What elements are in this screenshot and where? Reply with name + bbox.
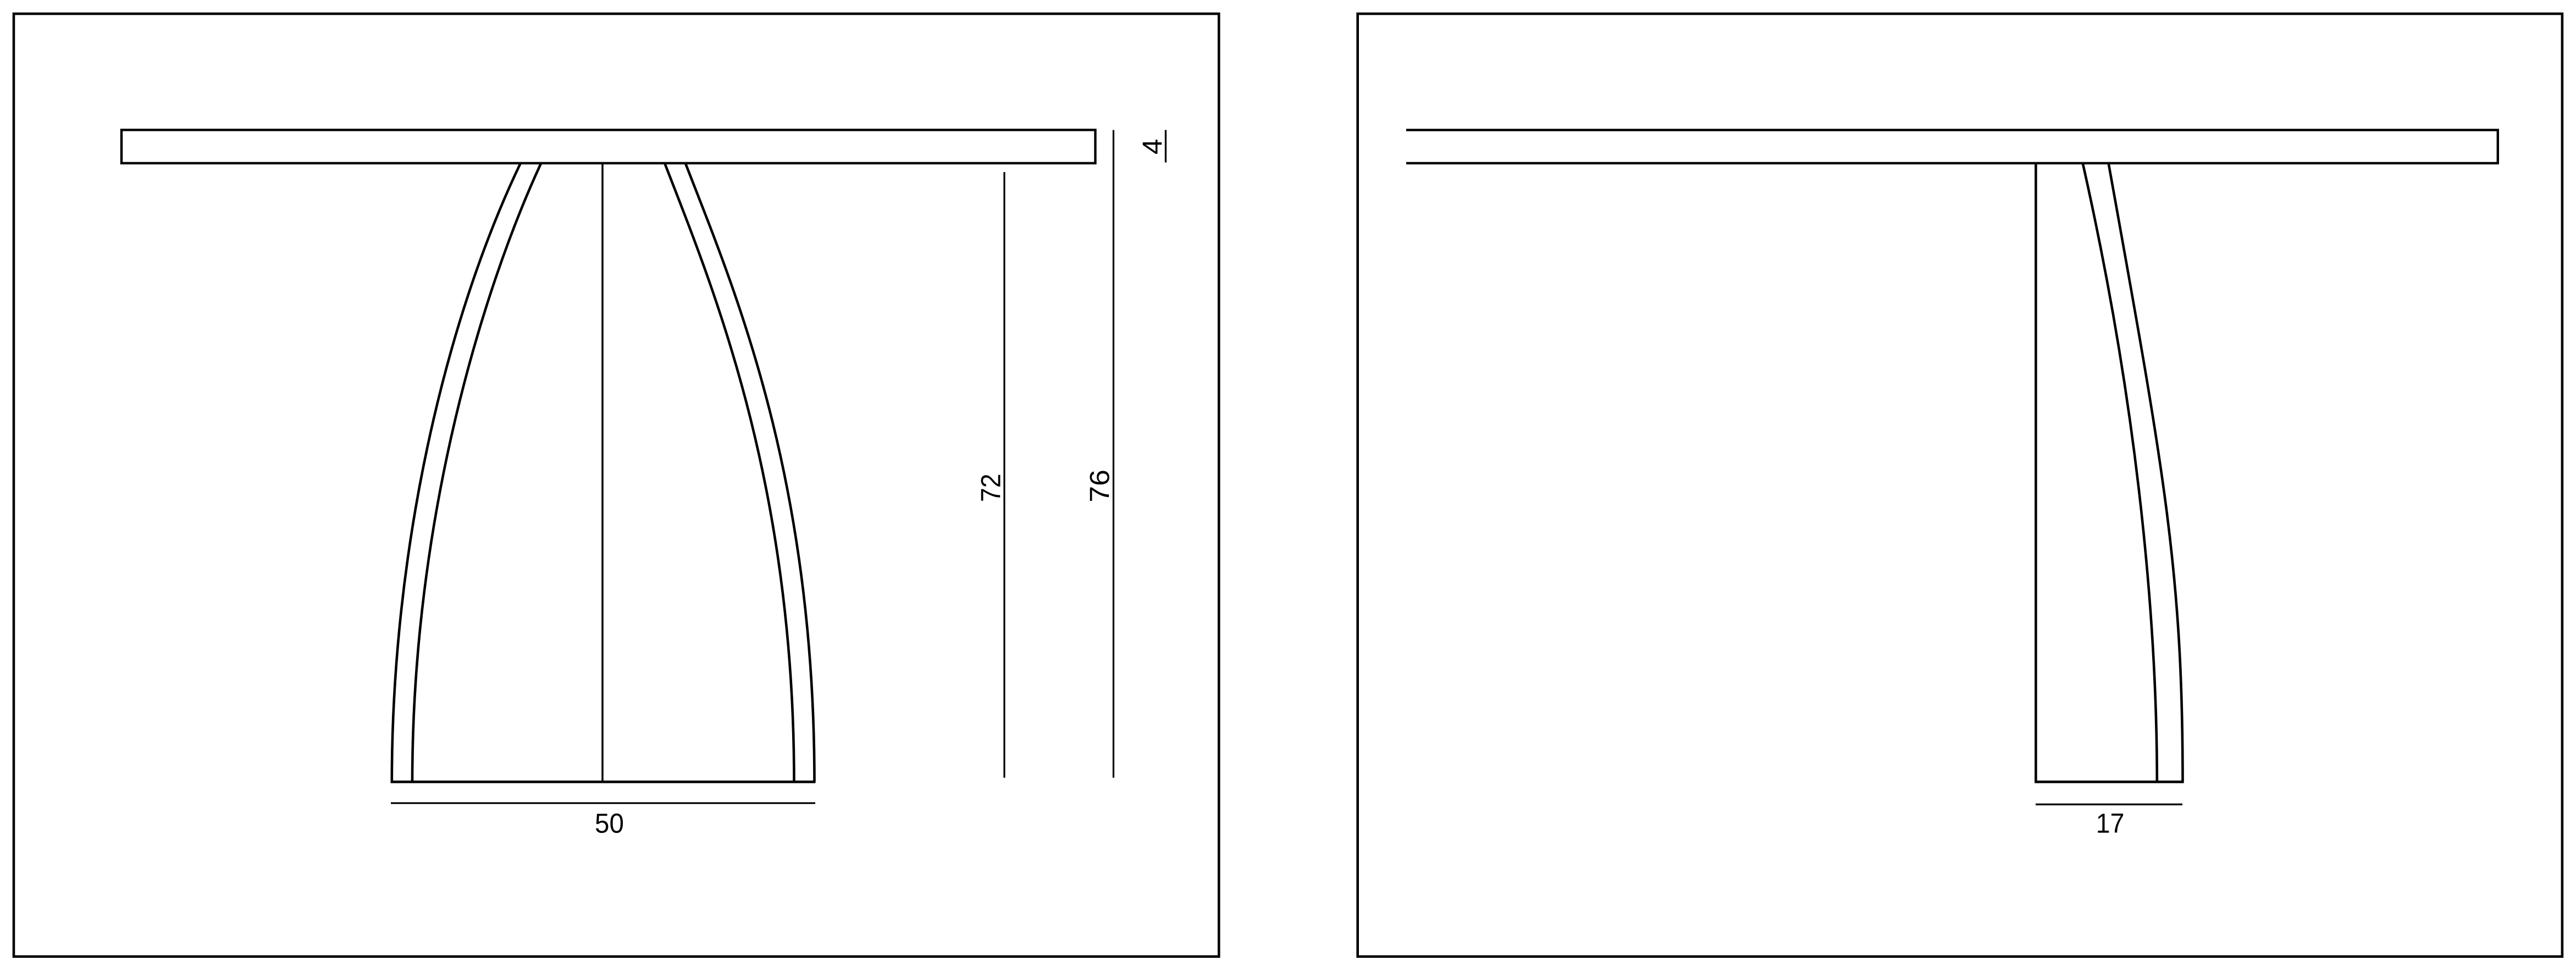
svg-text:17: 17 <box>2096 808 2125 839</box>
svg-text:4: 4 <box>1137 139 1168 155</box>
svg-text:50: 50 <box>595 808 624 839</box>
svg-text:72: 72 <box>976 473 1007 502</box>
svg-text:76: 76 <box>1085 470 1115 503</box>
